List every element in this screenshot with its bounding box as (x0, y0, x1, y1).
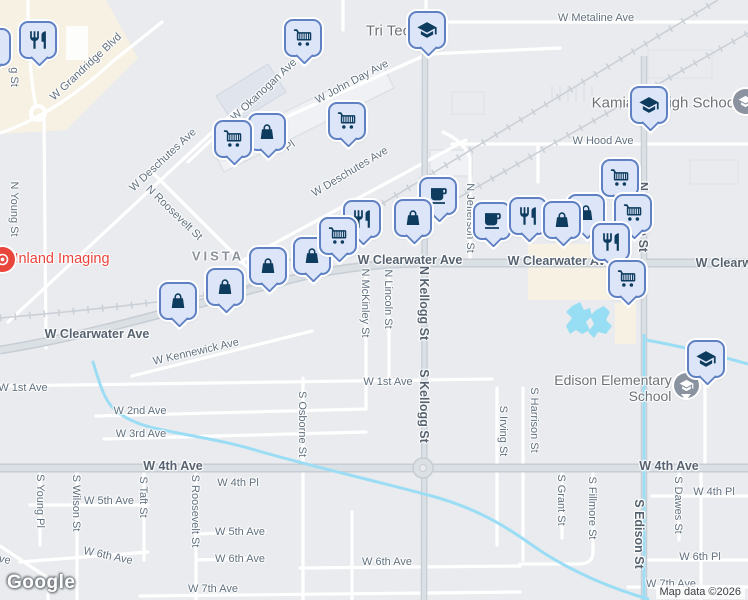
street-label: S Fillmore St (586, 477, 598, 540)
poi-marker-cafe[interactable] (473, 202, 511, 240)
poi-label: Tri Tec (366, 23, 410, 40)
poi-marker-restaurant[interactable] (592, 223, 630, 261)
street-label: W 4th Pl (693, 486, 735, 498)
bag-icon (552, 210, 573, 231)
poi-marker-bag[interactable] (206, 268, 244, 306)
poi-label: Edison Elementary (554, 372, 672, 388)
map-canvas[interactable]: W Grandridge Blvdg StN Young StW Okanoga… (0, 0, 748, 600)
street-label: W 6th Pl (679, 551, 721, 563)
poi-marker-cart[interactable] (328, 102, 366, 140)
bag-icon (168, 291, 189, 312)
street-label: W 4th Ave (639, 459, 699, 473)
street-label: W 6th Ave (82, 545, 133, 567)
cart-icon (610, 168, 631, 189)
street-label: W 1st Ave (0, 382, 48, 394)
poi-marker-restaurant[interactable] (19, 21, 57, 59)
street-label: N Young St (8, 181, 20, 236)
street-label: W 6th Ave (362, 556, 412, 568)
street-label: W Grandridge Blvd (48, 31, 124, 103)
cart-icon (623, 203, 644, 224)
street-label: N McKinley St (359, 268, 371, 337)
street-label: W 6th Ave (215, 553, 265, 565)
poi-label: School (629, 388, 672, 404)
street-label: W 5th Ave (84, 495, 134, 507)
cart-icon (223, 129, 244, 150)
poi-marker-bag[interactable] (0, 28, 11, 66)
street-label: W Clearwater Ave (358, 253, 463, 267)
poi-pointer (681, 394, 691, 405)
street-label: W Clearwater Ave (45, 327, 150, 341)
street-label: N Kellogg St (417, 266, 431, 340)
street-label: S Young Pl (34, 474, 46, 528)
poi-marker-cart[interactable] (601, 159, 639, 197)
cart-icon (293, 28, 314, 49)
street-label: W 6th Ave (0, 545, 12, 567)
street-label: N Lincoln St (382, 269, 394, 328)
street-label: W 5th Ave (215, 526, 265, 538)
street-label: S Kellogg St (417, 369, 431, 443)
street-label: S Grant St (555, 474, 567, 525)
street-label: W Deschutes Ave (310, 145, 390, 200)
cart-icon (337, 111, 358, 132)
street-label: W Clearwater Ave (696, 256, 748, 270)
street-label: W 3rd Ave (116, 428, 167, 440)
poi-label: Inland Imaging (14, 251, 109, 267)
street-label: S Osborne St (296, 391, 308, 457)
street-label: S Wilson St (70, 475, 82, 532)
street-label: W 7th Ave (188, 583, 238, 595)
school-icon (696, 349, 717, 370)
radiology-icon (0, 252, 10, 267)
poi-marker-bag[interactable] (394, 199, 432, 237)
poi-marker-bag[interactable] (543, 201, 581, 239)
school-icon (417, 20, 438, 41)
restaurant-icon (601, 232, 622, 253)
poi-marker-cart[interactable] (284, 19, 322, 57)
poi-marker-school[interactable] (408, 11, 446, 49)
street-label: W 4th Ave (143, 459, 203, 473)
school-icon (738, 94, 748, 109)
street-label: W 4th Pl (217, 477, 259, 489)
bag-icon (0, 37, 3, 58)
street-label: S Dawes St (672, 476, 684, 533)
google-logo[interactable]: Google (7, 572, 75, 594)
street-label: S Taft St (137, 476, 149, 517)
poi-marker-school[interactable] (630, 86, 668, 124)
street-label: S Harrison St (528, 387, 540, 452)
cart-icon (617, 269, 638, 290)
street-label: W John Day Ave (313, 58, 390, 107)
street-label: W 1st Ave (363, 376, 412, 388)
street-label: g St (8, 67, 20, 87)
map-attribution: Map data ©2026 (656, 585, 746, 599)
restaurant-icon (28, 30, 49, 51)
street-label: W Deschutes Ave (127, 126, 199, 194)
street-label: W Metaline Ave (558, 12, 634, 24)
poi-marker-bag[interactable] (159, 282, 197, 320)
poi-marker-cart[interactable] (214, 120, 252, 158)
street-label: W Hood Ave (573, 135, 634, 147)
street-label: W 2nd Ave (114, 405, 167, 417)
poi-marker-cart[interactable] (319, 217, 357, 255)
poi-marker-restaurant[interactable] (509, 197, 547, 235)
street-label: N Roosevelt St (143, 183, 204, 243)
locality-label: VISTA (192, 249, 244, 264)
poi-marker-bag[interactable] (249, 247, 287, 285)
bag-icon (215, 277, 236, 298)
street-label: S Irving St (497, 406, 509, 457)
cart-icon (328, 226, 349, 247)
poi-marker-bag[interactable] (248, 113, 286, 151)
school-icon (639, 95, 660, 116)
bag-icon (403, 208, 424, 229)
street-label: S Roosevelt St (189, 475, 201, 548)
school-icon (679, 378, 694, 393)
cafe-icon (482, 211, 503, 232)
bag-icon (258, 256, 279, 277)
restaurant-icon (518, 206, 539, 227)
bag-icon (257, 122, 278, 143)
street-label: W Kennewick Ave (152, 336, 240, 367)
street-label: S Edison St (632, 499, 646, 568)
poi-marker-cart[interactable] (608, 260, 646, 298)
poi-marker-school[interactable] (687, 340, 725, 378)
